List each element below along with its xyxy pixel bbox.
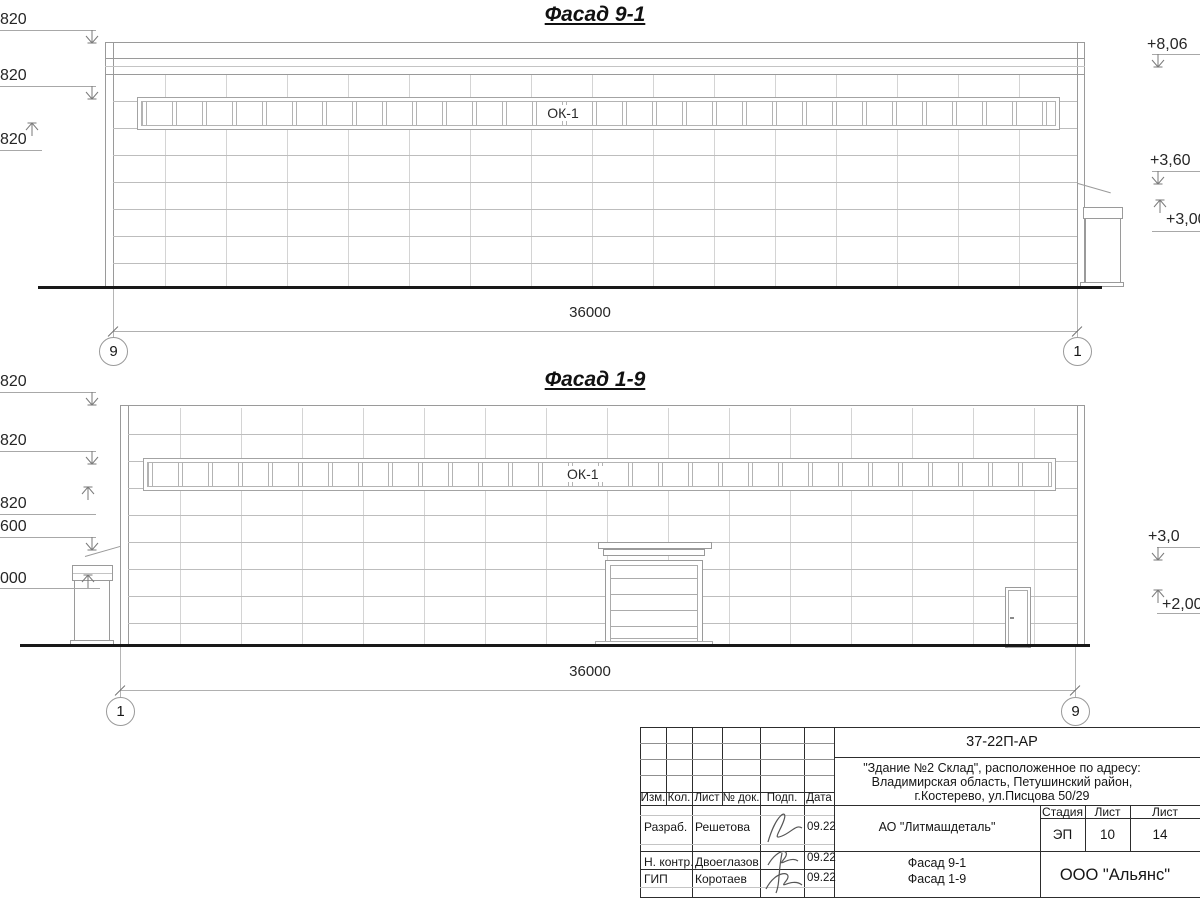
- signature-developer: [762, 806, 804, 848]
- elevation-down-icon: [84, 537, 100, 555]
- tb-role-ncontrol: Н. контр.: [644, 855, 694, 869]
- tb-sheet-title-line2: Фасад 1-9: [834, 872, 1040, 886]
- facade2-gate-slat: [611, 626, 697, 627]
- elevation-down-icon: [1150, 171, 1166, 189]
- facade1-elev-left-1: 820: [0, 11, 27, 29]
- facade2-elev-left-3: 820: [0, 495, 27, 513]
- tb-role-gip: ГИП: [644, 872, 668, 886]
- tb-sheet-value: 10: [1085, 827, 1130, 842]
- facade1-axis-left: 9: [99, 337, 128, 366]
- facade2-gate-canopy-fascia: [603, 549, 705, 556]
- facade2-gate-slat: [611, 610, 697, 611]
- tb-col-izm: Изм.: [640, 792, 666, 804]
- facade1-elev-right-1: +8,06: [1147, 36, 1187, 54]
- facade2-gate-slat: [611, 578, 697, 579]
- facade2-elev-left-2: 820: [0, 432, 27, 450]
- elevation-up-icon: [80, 482, 96, 500]
- tb-sheets-header: Лист: [1130, 805, 1200, 819]
- tb-vline: [692, 727, 693, 898]
- signature-ncontrol-gip: [760, 845, 806, 895]
- elevation-down-icon: [84, 30, 100, 48]
- drawing-sheet: Фасад 9-1 ОК-1 36000 9 1 820 820 820 +8,…: [0, 0, 1200, 900]
- facade1-elev-right-3-line: [1152, 231, 1200, 232]
- elevation-down-icon: [1150, 54, 1166, 72]
- tb-sheets-total-value: 14: [1130, 827, 1190, 842]
- facade1-dimension-line: [113, 331, 1077, 332]
- facade2-elev-right-1: +3,0: [1148, 528, 1180, 546]
- facade2-door-handle: [1010, 617, 1014, 619]
- elevation-down-icon: [1150, 547, 1166, 565]
- facade2-elev-left-5-line: [0, 588, 100, 589]
- facade2-panel-grid: [128, 408, 1077, 644]
- facade2-axis-right: 9: [1061, 697, 1090, 726]
- tb-hline: [640, 743, 834, 744]
- facade2-elev-left-4: 600: [0, 518, 27, 536]
- tb-hline: [640, 775, 834, 776]
- facade2-elev-right-2: +2,00: [1162, 596, 1200, 614]
- facade1-annex-fascia: [1083, 207, 1123, 219]
- tb-doc-number: 37-22П-АР: [834, 734, 1170, 750]
- facade1-window-band: ОК-1: [137, 97, 1060, 130]
- tb-role-developer: Разраб.: [644, 820, 687, 834]
- facade2-annex-post-right: [109, 581, 110, 641]
- facade1-axis-right: 1: [1063, 337, 1092, 366]
- tb-stage-value: ЭП: [1040, 827, 1085, 842]
- facade2-title: Фасад 1-9: [465, 368, 725, 392]
- tb-hline: [640, 759, 834, 760]
- facade1-parapet-line-1: [105, 58, 1085, 59]
- tb-col-data: Дата: [804, 792, 834, 804]
- tb-hline: [834, 757, 1200, 758]
- facade2-window-label: ОК-1: [563, 466, 603, 482]
- tb-name-gip: Коротаев: [695, 872, 747, 886]
- facade2-gate-slat: [611, 638, 697, 639]
- facade2-dimension-text: 36000: [530, 663, 650, 680]
- tb-address-line2: Владимирская область, Петушинский район,: [834, 775, 1170, 789]
- elevation-down-icon: [84, 451, 100, 469]
- facade2-elev-left-2-line: [0, 451, 96, 452]
- tb-col-podp: Подп.: [760, 792, 804, 804]
- facade1-right-column-line: [1077, 42, 1078, 287]
- facade1-elev-left-1-line: [0, 30, 96, 31]
- facade2-elev-left-5: 000: [0, 570, 27, 588]
- facade1-annex-post-left: [1085, 219, 1086, 283]
- facade1-title: Фасад 9-1: [465, 3, 725, 27]
- facade2-right-column-line: [1077, 405, 1078, 645]
- tb-company: ООО "Альянс": [1040, 866, 1190, 885]
- tb-col-kol: Кол.: [666, 792, 692, 804]
- tb-address-line1: "Здание №2 Склад", расположенное по адре…: [834, 761, 1170, 775]
- tb-date-developer: 09.22: [807, 821, 836, 833]
- tb-address-line3: г.Костерево, ул.Писцова 50/29: [834, 789, 1170, 803]
- tb-col-doc: № док.: [722, 792, 760, 804]
- tb-sheet-title-line1: Фасад 9-1: [834, 856, 1040, 870]
- facade1-elev-right-3: +3,00: [1166, 211, 1200, 229]
- facade1-elev-left-2: 820: [0, 67, 27, 85]
- tb-date-gip: 09.22: [807, 872, 836, 884]
- tb-hline: [640, 815, 834, 816]
- facade1-elev-left-3-line: [0, 150, 42, 151]
- facade1-window-label: ОК-1: [543, 105, 583, 121]
- facade2-elev-right-2-line: [1157, 613, 1200, 614]
- facade1-elev-left-2-line: [0, 86, 96, 87]
- tb-hline: [640, 851, 1200, 852]
- facade2-elev-left-3-line: [0, 514, 96, 515]
- facade2-door-leaf: [1008, 590, 1028, 648]
- facade2-annex-post-left: [74, 581, 75, 641]
- elevation-up-icon: [80, 570, 96, 588]
- facade1-dimension-text: 36000: [530, 304, 650, 321]
- tb-sheet-header: Лист: [1085, 805, 1130, 819]
- facade1-elev-left-3: 820: [0, 131, 27, 149]
- facade1-window-cells: [141, 101, 1056, 126]
- facade2-gate-leaf: [610, 565, 698, 645]
- tb-client: АО "Литмашдеталь": [834, 820, 1040, 834]
- facade2-elev-left-1: 820: [0, 373, 27, 391]
- tb-name-ncontrol: Двоеглазов: [695, 855, 759, 869]
- tb-stage-header: Стадия: [1040, 805, 1085, 819]
- tb-name-developer: Решетова: [695, 820, 750, 834]
- facade1-ground-line: [38, 286, 1102, 289]
- facade1-parapet-line-2: [105, 66, 1085, 67]
- elevation-down-icon: [84, 86, 100, 104]
- facade2-dimension-line: [120, 690, 1075, 691]
- facade2-elev-left-4-line: [0, 537, 96, 538]
- facade2-ground-line: [20, 644, 1090, 647]
- facade2-axis-left: 1: [106, 697, 135, 726]
- tb-date-ncontrol: 09.22: [807, 852, 836, 864]
- facade2-gate-canopy-top: [598, 542, 712, 549]
- facade2-window-band: ОК-1: [143, 458, 1056, 491]
- facade1-annex-post-right: [1120, 219, 1121, 283]
- facade2-gate-slat: [611, 594, 697, 595]
- elevation-down-icon: [84, 392, 100, 410]
- facade2-elev-left-1-line: [0, 392, 96, 393]
- tb-col-list: Лист: [692, 792, 722, 804]
- facade1-elev-right-2: +3,60: [1150, 152, 1190, 170]
